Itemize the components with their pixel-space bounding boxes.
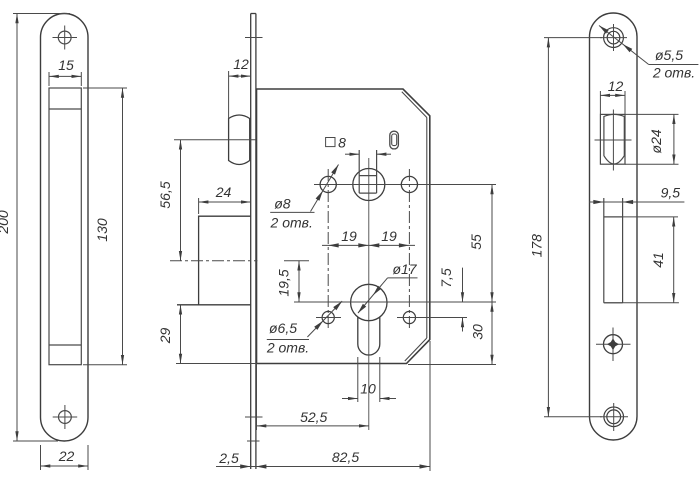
svg-text:12: 12 bbox=[608, 78, 624, 94]
svg-text:15: 15 bbox=[58, 57, 74, 73]
svg-text:56,5: 56,5 bbox=[157, 181, 173, 208]
svg-text:ø24: ø24 bbox=[648, 129, 664, 153]
svg-text:178: 178 bbox=[529, 234, 545, 258]
svg-text:ø8: ø8 bbox=[274, 196, 291, 212]
svg-text:30: 30 bbox=[470, 324, 486, 340]
svg-text:ø5,5: ø5,5 bbox=[655, 47, 683, 63]
svg-text:22: 22 bbox=[58, 448, 75, 464]
svg-text:52,5: 52,5 bbox=[300, 409, 327, 425]
svg-text:2 отв.: 2 отв. bbox=[652, 65, 695, 81]
svg-text:200: 200 bbox=[0, 210, 11, 235]
svg-text:7,5: 7,5 bbox=[438, 268, 454, 288]
svg-text:82,5: 82,5 bbox=[332, 449, 359, 465]
svg-text:2,5: 2,5 bbox=[218, 450, 239, 466]
svg-text:29: 29 bbox=[157, 328, 173, 345]
svg-text:19,5: 19,5 bbox=[275, 269, 291, 296]
svg-text:10: 10 bbox=[360, 381, 376, 397]
svg-text:55: 55 bbox=[468, 234, 484, 250]
svg-text:130: 130 bbox=[94, 218, 110, 242]
svg-text:12: 12 bbox=[233, 56, 249, 72]
svg-text:2 отв.: 2 отв. bbox=[270, 214, 313, 230]
svg-text:8: 8 bbox=[338, 135, 346, 151]
svg-text:24: 24 bbox=[215, 184, 232, 200]
svg-text:9,5: 9,5 bbox=[661, 185, 681, 201]
svg-text:ø17: ø17 bbox=[392, 261, 417, 277]
svg-text:2 отв.: 2 отв. bbox=[266, 340, 309, 356]
svg-text:41: 41 bbox=[650, 252, 666, 268]
svg-text:19: 19 bbox=[381, 228, 397, 244]
svg-text:ø6,5: ø6,5 bbox=[269, 320, 297, 336]
svg-text:19: 19 bbox=[341, 228, 357, 244]
